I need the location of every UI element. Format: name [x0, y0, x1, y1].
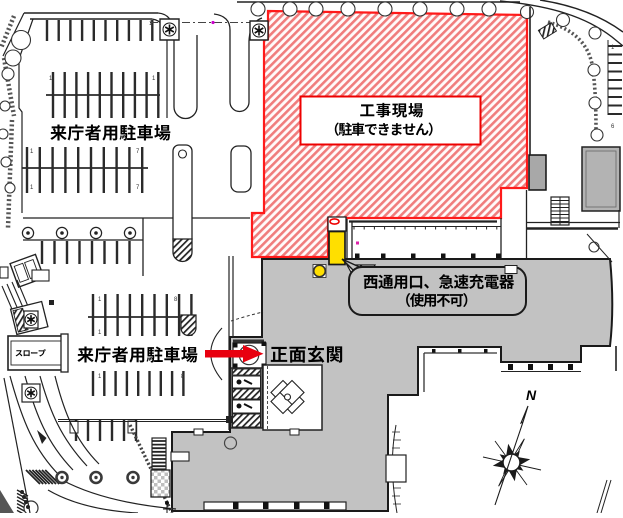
svg-text:N: N [526, 387, 537, 403]
